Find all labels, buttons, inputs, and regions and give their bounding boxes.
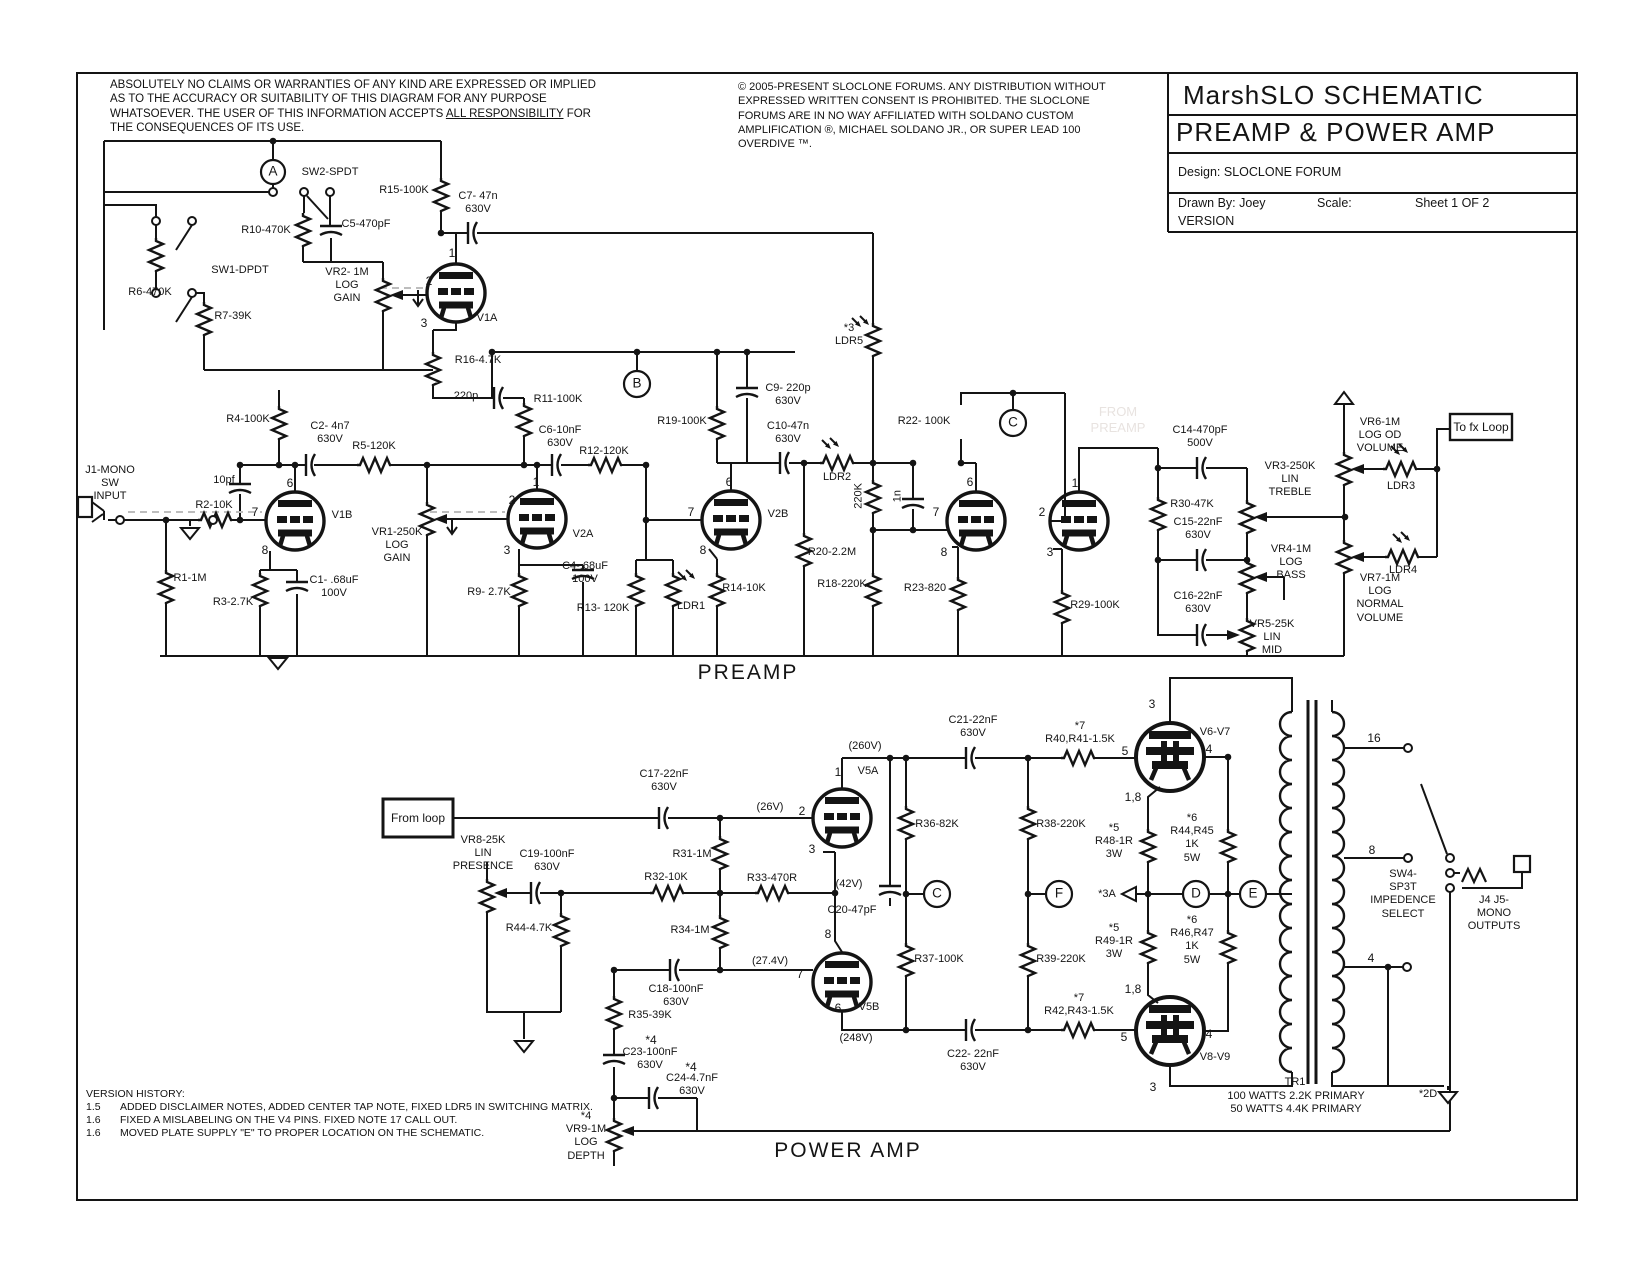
vacuum-tubes xyxy=(266,264,1204,1065)
version-text: MOVED PLATE SUPPLY "E" TO PROPER LOCATIO… xyxy=(120,1127,484,1140)
version-history-row: 1.5 ADDED DISCLAIMER NOTES, ADDED CENTER… xyxy=(86,1101,593,1114)
wiper-arrows xyxy=(390,290,1364,1136)
sheet-field: Sheet 1 OF 2 xyxy=(1415,196,1489,211)
output-transformer xyxy=(1280,700,1344,1084)
schematic-page: ABSOLUTELY NO CLAIMS OR WARRANTIES OF AN… xyxy=(0,0,1651,1276)
version-history: VERSION HISTORY: 1.5 ADDED DISCLAIMER NO… xyxy=(86,1088,593,1141)
version-field: VERSION xyxy=(1178,214,1234,229)
version-text: FIXED A MISLABELING ON THE V4 PINS. FIXE… xyxy=(120,1114,457,1127)
output-jack-symbol xyxy=(1462,856,1530,882)
scale-field: Scale: xyxy=(1317,196,1352,211)
from-loop-box xyxy=(383,799,453,837)
copyright-text: © 2005-PRESENT SLOCLONE FORUMS. ANY DIST… xyxy=(738,80,1106,151)
resistors-horizontal xyxy=(198,456,1419,1037)
schematic-title-line2: PREAMP & POWER AMP xyxy=(1176,117,1495,148)
drawn-by-field: Drawn By: Joey xyxy=(1178,196,1266,211)
version-history-row: 1.6 MOVED PLATE SUPPLY "E" TO PROPER LOC… xyxy=(86,1127,593,1140)
version-number: 1.5 xyxy=(86,1101,120,1114)
disclaimer-text: ABSOLUTELY NO CLAIMS OR WARRANTIES OF AN… xyxy=(110,78,602,136)
page-frame xyxy=(77,73,1577,1200)
ground-symbols xyxy=(181,290,1457,1103)
design-field: Design: SLOCLONE FORUM xyxy=(1178,165,1341,180)
to-fx-loop-box xyxy=(1450,414,1512,440)
potentiometers xyxy=(376,278,1351,1152)
schematic-graphics xyxy=(0,0,1651,1276)
resistors-vertical xyxy=(149,178,1235,1030)
ldr-arrows xyxy=(678,316,1410,581)
plate-supply-3a-arrow xyxy=(1122,887,1136,901)
node-circles xyxy=(261,160,1266,907)
version-text: ADDED DISCLAIMER NOTES, ADDED CENTER TAP… xyxy=(120,1101,593,1114)
version-history-heading: VERSION HISTORY: xyxy=(86,1088,593,1101)
schematic-title-line1: MarshSLO SCHEMATIC xyxy=(1183,80,1484,111)
version-number: 1.6 xyxy=(86,1127,120,1140)
version-history-row: 1.6 FIXED A MISLABELING ON THE V4 PINS. … xyxy=(86,1114,593,1127)
input-jack-symbol xyxy=(78,497,92,517)
version-number: 1.6 xyxy=(86,1114,120,1127)
junction-dots xyxy=(163,138,1441,1102)
